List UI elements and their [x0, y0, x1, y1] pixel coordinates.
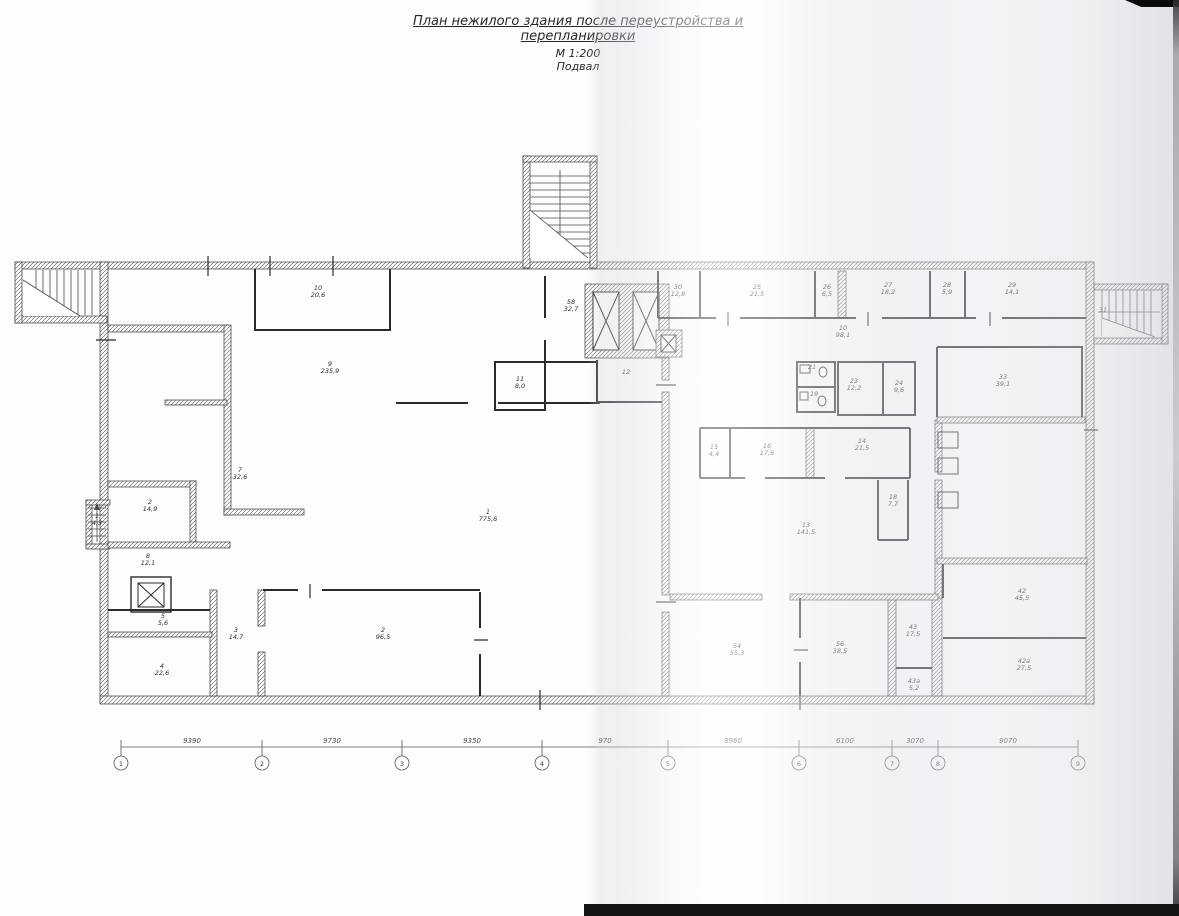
elevator-shafts — [131, 284, 682, 612]
room-area-label: 4,4 — [709, 450, 719, 458]
room-number-label: 21 — [808, 363, 816, 371]
room-area-label: 18,2 — [881, 288, 895, 296]
dimension-value: 6100 — [836, 737, 854, 745]
room-area-label: 5,6 — [158, 619, 168, 627]
room-area-label: 22,6 — [155, 669, 169, 677]
plan-floor-name: Подвал — [393, 60, 763, 73]
room-area-label: 21,5 — [855, 444, 869, 452]
room-area-label: 14,7 — [229, 633, 244, 641]
axis-bubble: 2 — [260, 760, 264, 768]
room-area-label: 4,3 — [92, 519, 102, 527]
drawing-title-block: План нежилого здания после переустройств… — [393, 14, 763, 73]
axis-bubble: 9 — [1076, 760, 1080, 768]
floor-plan-drawing: 10 20,6 9 235,9 7 32,6 2 14,9 1 4,3 8 12… — [0, 0, 1179, 916]
room-area-label: 32,6 — [233, 473, 247, 481]
room-area-label: 5,2 — [909, 684, 919, 692]
room-area-label: 96,5 — [376, 633, 390, 641]
dimension-line: 1 2 3 4 5 6 7 8 9 9390 9730 9350 970 896… — [114, 737, 1085, 770]
plan-scale: М 1:200 — [393, 47, 763, 60]
room-area-label: 17,5 — [906, 630, 920, 638]
dimension-value: 9390 — [183, 737, 201, 745]
room-number-label: 31 — [1099, 306, 1107, 314]
dimension-value: 970 — [598, 737, 612, 745]
room-area-label: 38,5 — [833, 647, 847, 655]
hatched-walls — [15, 156, 1168, 704]
axis-bubble: 5 — [666, 760, 670, 768]
room-area-label: 8,0 — [515, 382, 525, 390]
room-area-label: 12,1 — [141, 559, 155, 567]
room-area-label: 235,9 — [321, 367, 340, 375]
dimension-value: 9070 — [999, 737, 1017, 745]
room-area-label: 27,5 — [1017, 664, 1031, 672]
room-area-label: 45,5 — [1015, 594, 1029, 602]
dimension-value: 8960 — [724, 737, 742, 745]
room-area-label: 20,6 — [311, 291, 325, 299]
room-area-label: 55,3 — [730, 649, 744, 657]
room-area-label: 14,9 — [143, 505, 157, 513]
room-area-label: 141,5 — [797, 528, 816, 536]
room-area-label: 6,5 — [822, 290, 832, 298]
room-area-label: 7,7 — [888, 500, 899, 508]
axis-bubble: 4 — [540, 760, 544, 768]
room-area-label: 775,6 — [479, 515, 498, 523]
room-area-label: 21,5 — [750, 290, 764, 298]
dimension-value: 3070 — [906, 737, 924, 745]
scanned-floor-plan-page: План нежилого здания после переустройств… — [0, 0, 1179, 916]
plan-title: План нежилого здания после переустройств… — [393, 14, 763, 44]
room-area-label: 12,2 — [847, 384, 861, 392]
room-area-label: 12,8 — [671, 290, 685, 298]
room-area-label: 5,9 — [942, 288, 952, 296]
room-area-label: 14,1 — [1005, 288, 1019, 296]
room-area-label: 17,6 — [760, 449, 774, 457]
axis-bubble: 7 — [890, 760, 894, 768]
room-area-label: 98,1 — [836, 331, 850, 339]
room-number-label: 19 — [810, 390, 818, 398]
room-area-label: 39,1 — [996, 380, 1010, 388]
dimension-value: 9350 — [463, 737, 481, 745]
axis-bubble: 8 — [936, 760, 940, 768]
room-area-label: 32,7 — [564, 305, 579, 313]
scan-bottom-strip — [584, 904, 1179, 916]
scan-right-edge — [1173, 0, 1179, 916]
axis-bubble: 1 — [119, 760, 123, 768]
room-area-label: 9,6 — [894, 386, 904, 394]
dimension-value: 9730 — [323, 737, 341, 745]
axis-bubble: 6 — [797, 760, 801, 768]
axis-bubble: 3 — [400, 760, 404, 768]
room-number-label: 12 — [622, 368, 630, 376]
